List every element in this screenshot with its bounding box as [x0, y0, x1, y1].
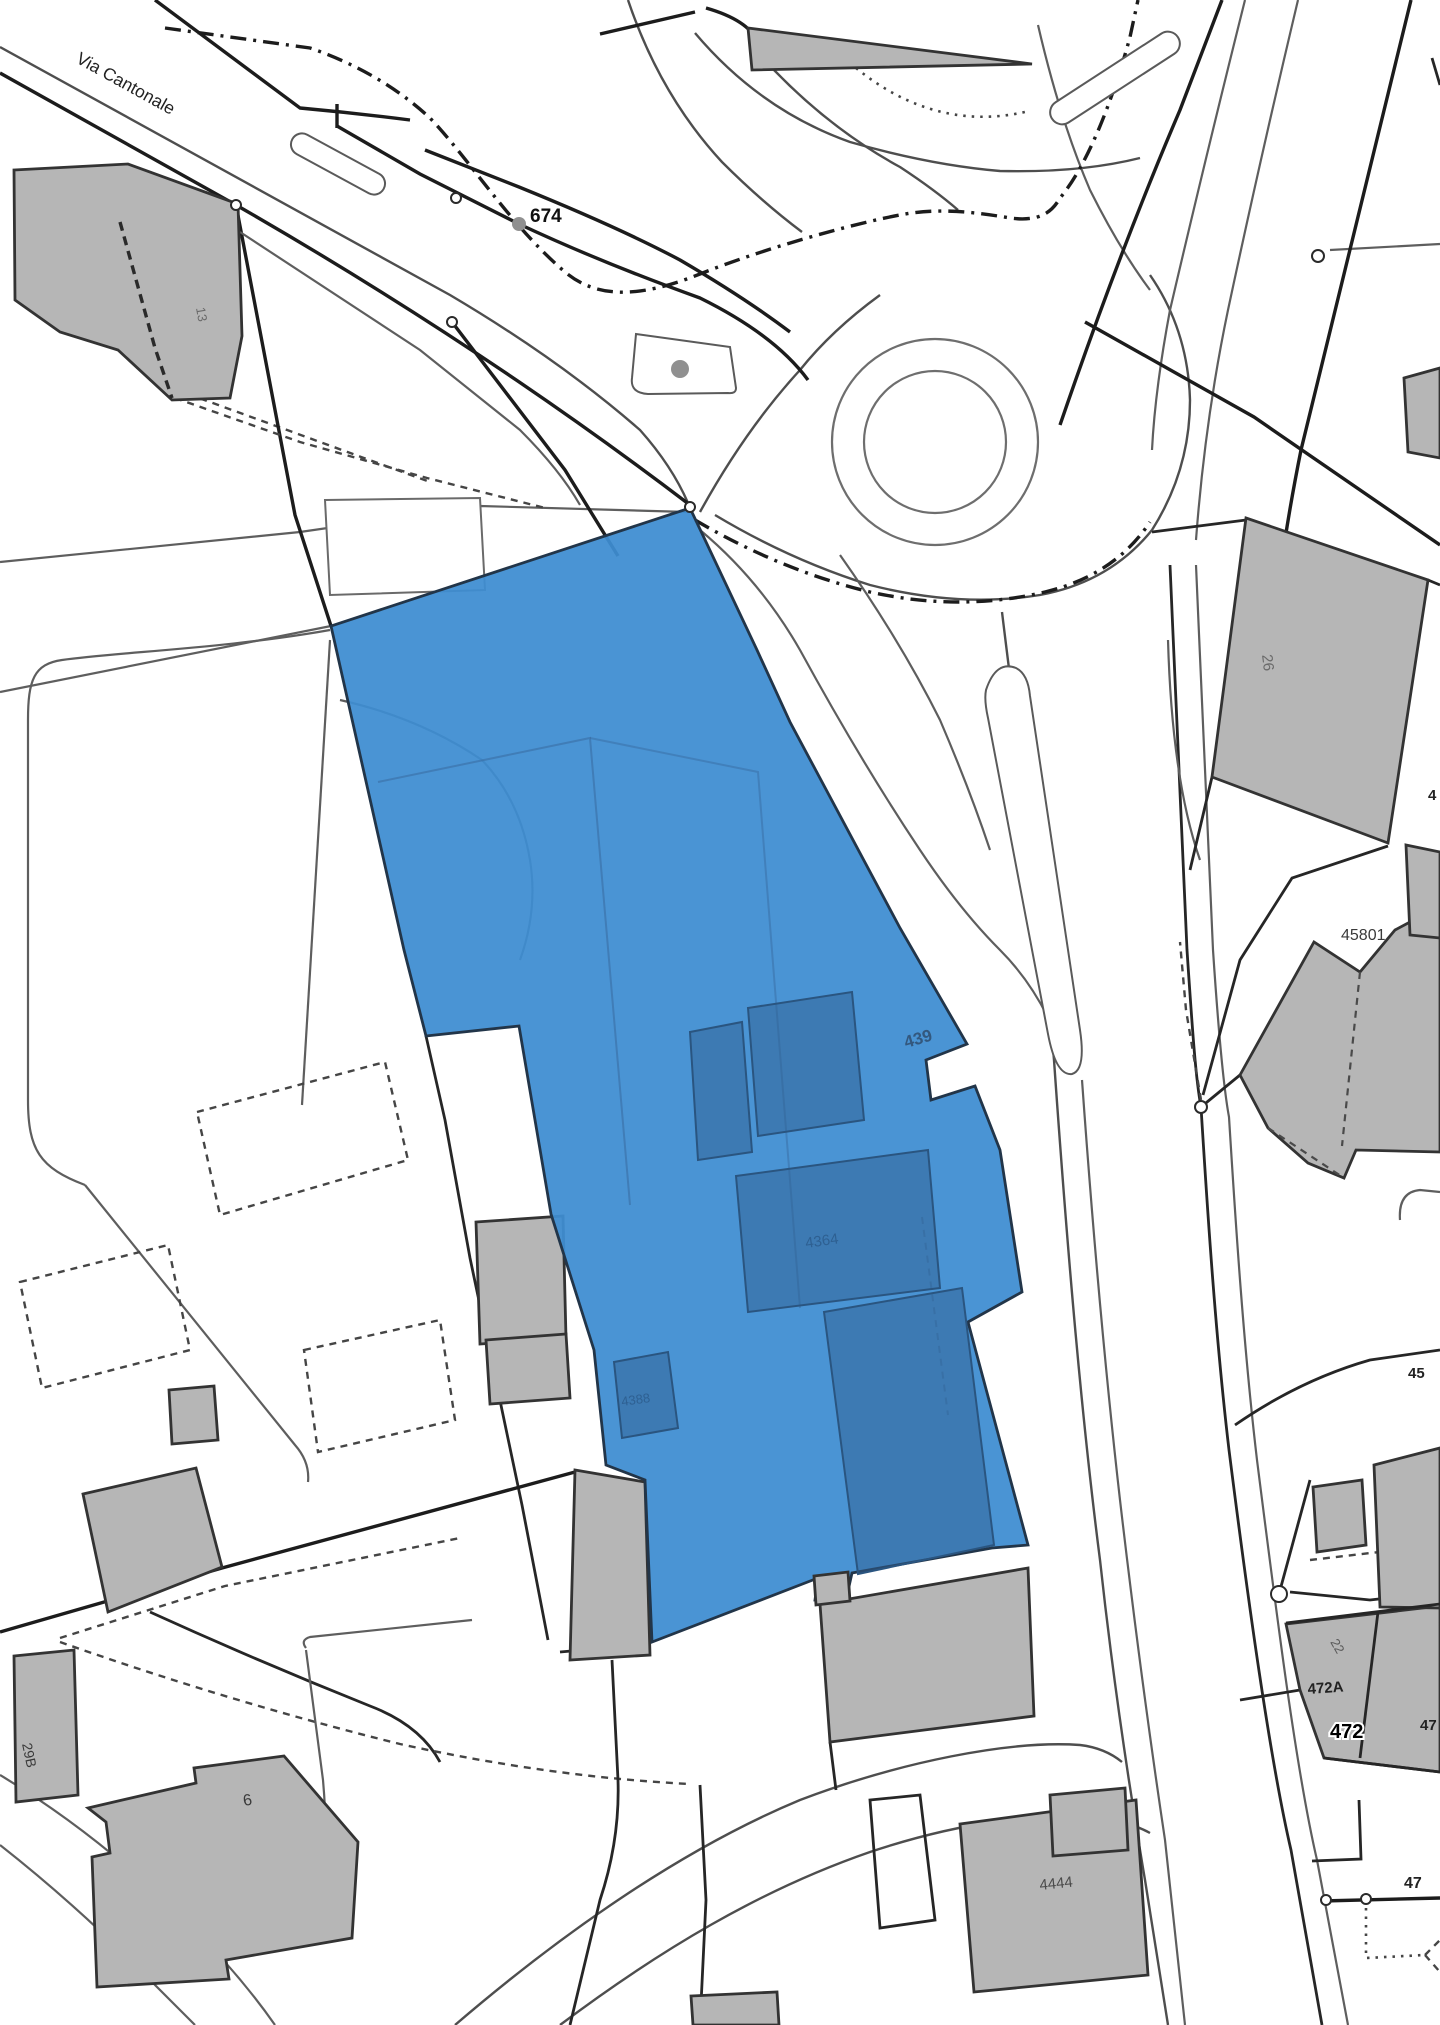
svg-text:45801: 45801 [1341, 927, 1386, 944]
svg-text:472A: 472A [1307, 1679, 1344, 1698]
svg-text:13: 13 [193, 306, 210, 323]
svg-text:4: 4 [1428, 787, 1437, 804]
svg-text:472: 472 [1330, 1721, 1363, 1743]
svg-text:47: 47 [1404, 1875, 1422, 1892]
svg-text:45: 45 [1408, 1365, 1425, 1382]
svg-text:47: 47 [1420, 1717, 1437, 1734]
svg-text:674: 674 [530, 206, 562, 227]
svg-text:26: 26 [1258, 653, 1277, 672]
svg-text:4444: 4444 [1039, 1874, 1074, 1894]
